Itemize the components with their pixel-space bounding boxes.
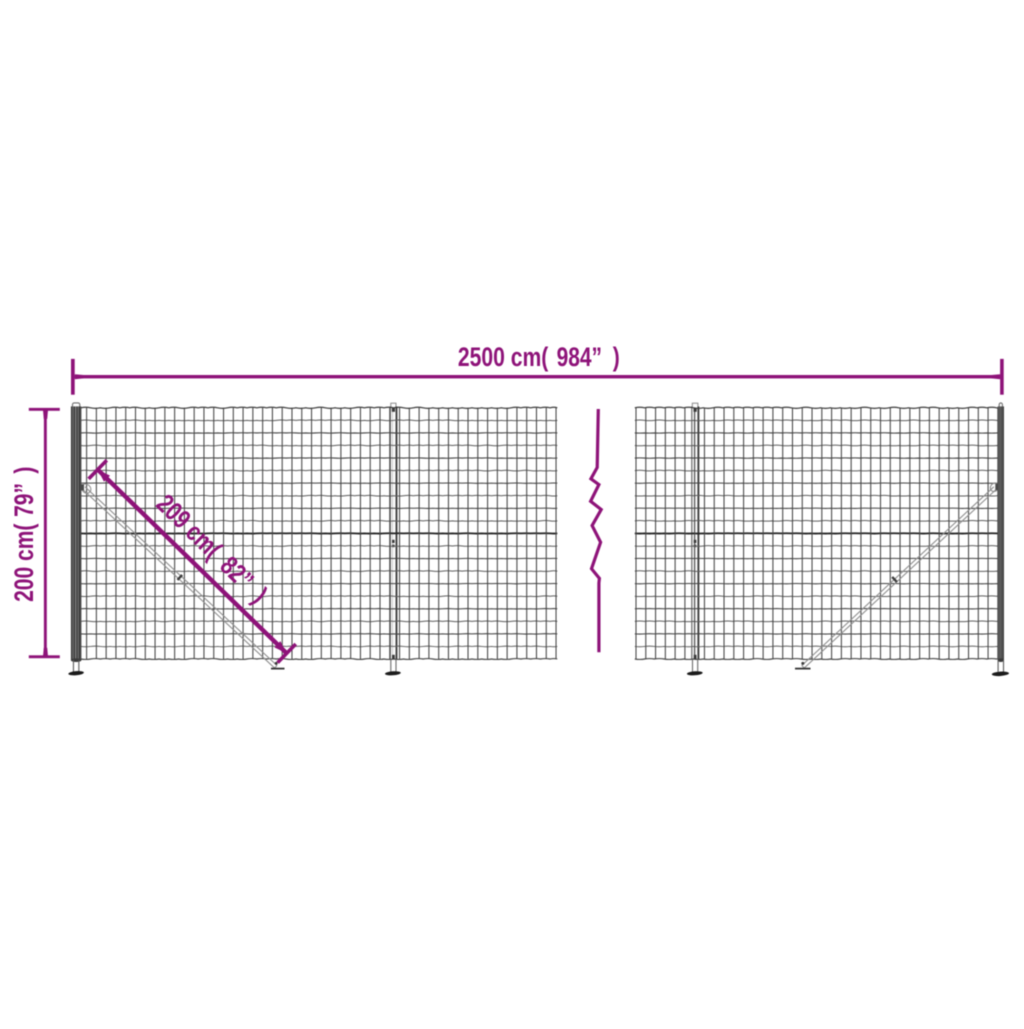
svg-text:79”: 79” bbox=[9, 483, 39, 517]
svg-text:2500 cm(: 2500 cm( bbox=[458, 342, 549, 372]
svg-text:): ) bbox=[9, 467, 39, 474]
svg-text:984”: 984” bbox=[557, 342, 602, 372]
svg-text:200 cm(: 200 cm( bbox=[9, 523, 39, 601]
svg-text:): ) bbox=[613, 342, 620, 372]
